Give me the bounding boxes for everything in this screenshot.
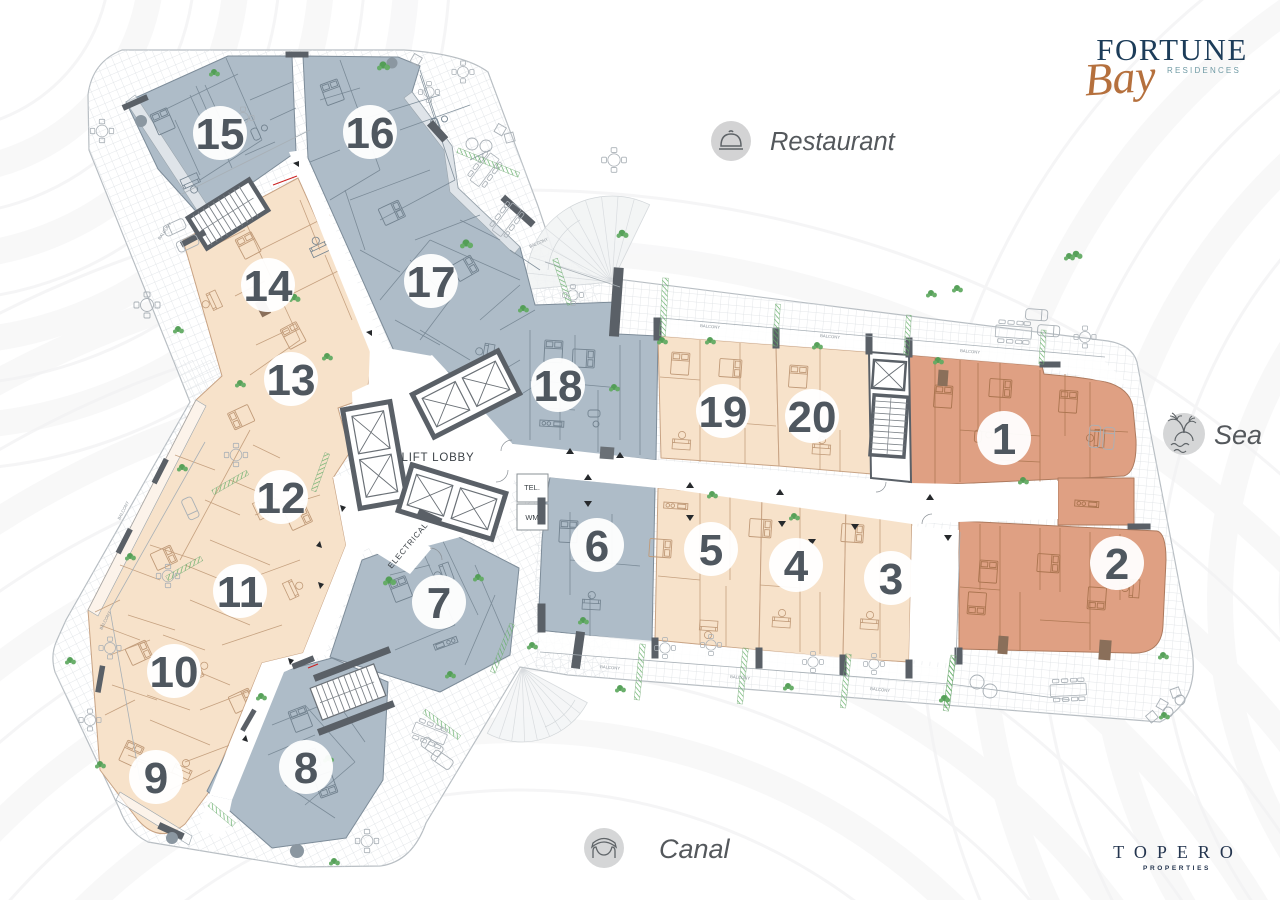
svg-text:19: 19 xyxy=(699,388,748,437)
svg-text:Restaurant: Restaurant xyxy=(770,128,896,156)
svg-text:1: 1 xyxy=(992,415,1016,464)
svg-text:5: 5 xyxy=(699,526,723,575)
svg-text:6: 6 xyxy=(585,522,609,571)
svg-text:16: 16 xyxy=(346,109,395,158)
svg-text:20: 20 xyxy=(788,393,837,442)
svg-text:11: 11 xyxy=(217,568,264,617)
svg-text:Canal: Canal xyxy=(659,834,731,864)
svg-text:7: 7 xyxy=(427,579,451,628)
svg-text:Bay: Bay xyxy=(1082,50,1157,106)
svg-text:3: 3 xyxy=(879,555,903,604)
svg-text:2: 2 xyxy=(1105,540,1129,589)
svg-text:Sea: Sea xyxy=(1214,420,1262,450)
svg-text:10: 10 xyxy=(150,648,199,697)
svg-text:TOPERO: TOPERO xyxy=(1113,842,1243,862)
svg-text:PROPERTIES: PROPERTIES xyxy=(1143,865,1211,872)
svg-text:17: 17 xyxy=(407,258,456,307)
svg-text:13: 13 xyxy=(267,356,316,405)
svg-text:RESIDENCES: RESIDENCES xyxy=(1167,66,1241,75)
svg-text:WM: WM xyxy=(525,513,538,522)
svg-text:TEL.: TEL. xyxy=(524,483,540,492)
svg-text:15: 15 xyxy=(196,110,245,159)
svg-text:LIFT LOBBY: LIFT LOBBY xyxy=(402,452,475,464)
svg-text:9: 9 xyxy=(144,754,168,803)
svg-text:4: 4 xyxy=(784,542,809,591)
svg-text:8: 8 xyxy=(294,744,318,793)
svg-text:18: 18 xyxy=(534,362,583,411)
svg-text:14: 14 xyxy=(244,262,293,311)
svg-text:12: 12 xyxy=(257,474,306,523)
